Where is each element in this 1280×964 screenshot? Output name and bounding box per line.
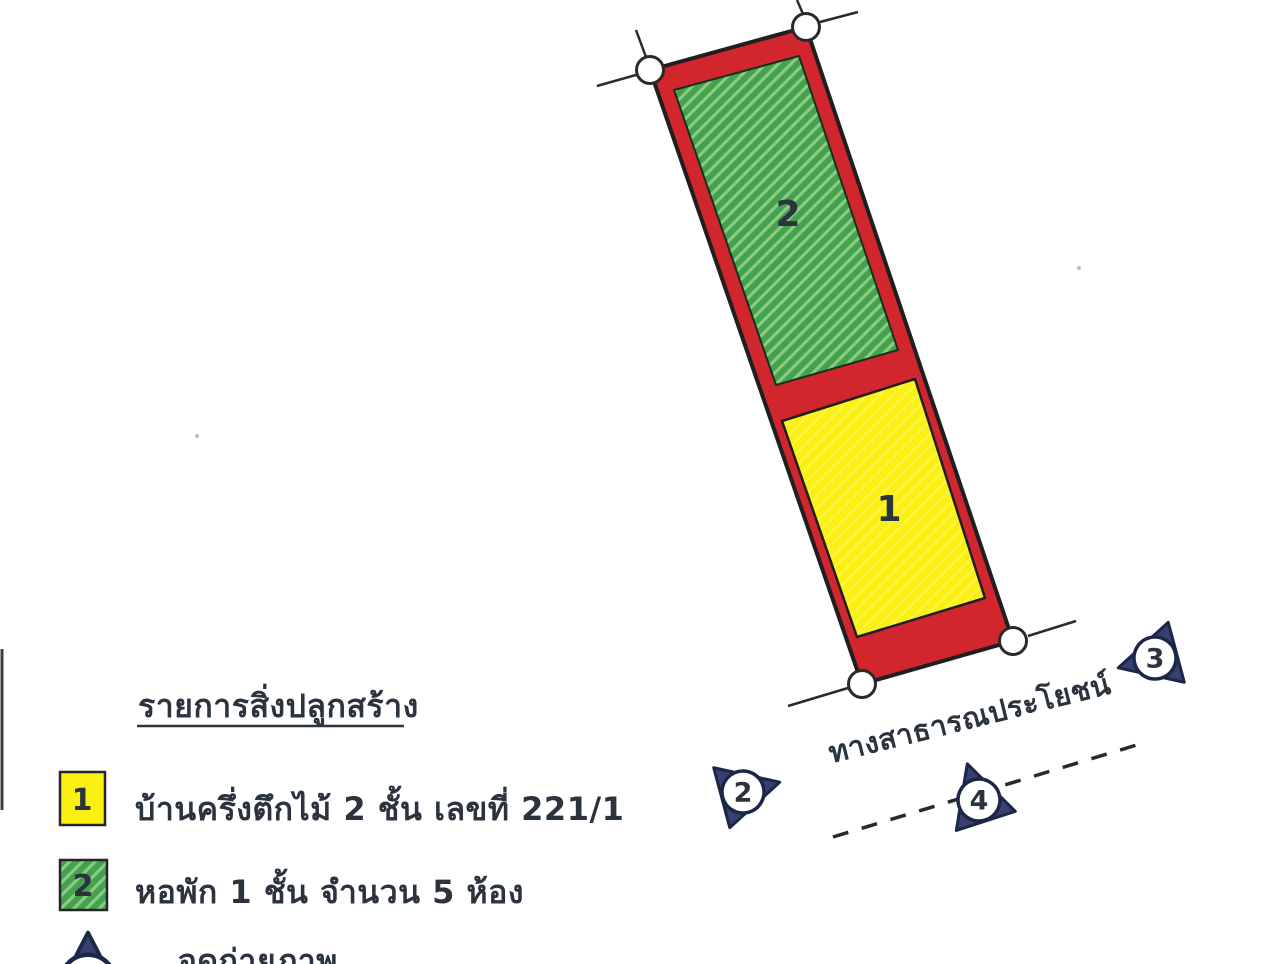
boundary-tick-topright-out — [820, 12, 858, 22]
photo-point-marker-3: 3 — [1110, 622, 1184, 697]
photo-point-marker-2: 2 — [714, 752, 788, 827]
boundary-tick-topleft-up — [636, 30, 646, 57]
photo-point-number: 4 — [970, 786, 989, 817]
boundary-tick-topleft-out — [597, 75, 636, 86]
photo-point-number: 3 — [1146, 644, 1165, 675]
boundary-marker-topright — [793, 14, 820, 41]
legend-swatch-2-number: 2 — [73, 869, 94, 904]
legend-item-2-label: หอพัก 1 ชั้น จำนวน 5 ห้อง — [135, 868, 524, 911]
road-edge-line-left — [788, 688, 848, 706]
building-2-number: 2 — [775, 194, 800, 235]
boundary-tick-topright-up — [797, 0, 803, 14]
boundary-marker-topleft — [637, 57, 664, 84]
boundary-marker-bottomleft — [849, 671, 876, 698]
scan-speck-left — [195, 434, 199, 438]
road-edge-line-right — [1028, 621, 1076, 636]
photo-point-marker-4: 4 — [938, 754, 1016, 830]
legend-photo-point-label: จุดถ่ายภาพ — [178, 942, 338, 964]
photo-point-circle — [61, 955, 116, 964]
site-plan: 2 1 ทางสาธารณประโยชน์ 2 3 4 รายการสิ่งปล… — [0, 0, 1280, 964]
survey-sketch-page: 2 1 ทางสาธารณประโยชน์ 2 3 4 รายการสิ่งปล… — [0, 0, 1280, 964]
photo-point-legend-icon — [48, 933, 129, 964]
legend-item-1-label: บ้านครึ่งตึกไม้ 2 ชั้น เลขที่ 221/1 — [135, 785, 624, 828]
scan-speck-right — [1077, 266, 1081, 270]
photo-point-number: 2 — [734, 778, 753, 809]
legend-swatch-1-number: 1 — [72, 783, 93, 818]
building-1-number: 1 — [876, 489, 901, 530]
boundary-marker-bottomright — [1000, 628, 1027, 655]
legend-title: รายการสิ่งปลูกสร้าง — [138, 683, 419, 727]
